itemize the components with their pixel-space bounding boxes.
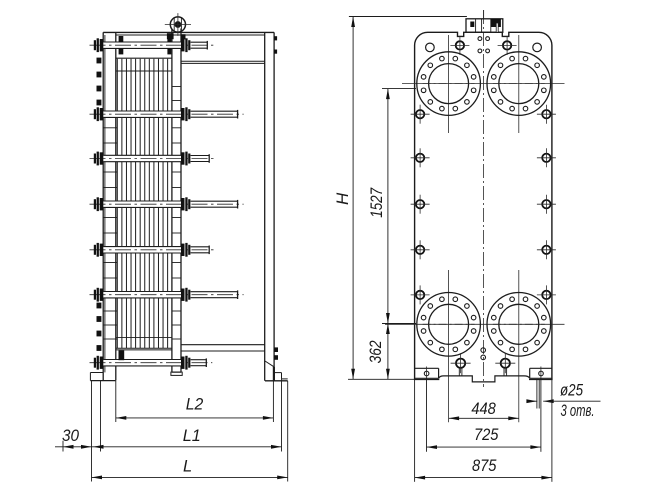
svg-text:L1: L1 bbox=[183, 427, 201, 445]
svg-text:L2: L2 bbox=[186, 396, 204, 414]
svg-text:ø25: ø25 bbox=[560, 382, 584, 400]
svg-text:875: 875 bbox=[472, 457, 497, 475]
svg-text:H: H bbox=[333, 192, 352, 205]
svg-text:1527: 1527 bbox=[368, 187, 386, 218]
svg-text:448: 448 bbox=[471, 400, 496, 418]
svg-text:3 отв.: 3 отв. bbox=[561, 402, 595, 420]
svg-text:30: 30 bbox=[62, 427, 80, 445]
svg-text:362: 362 bbox=[367, 340, 385, 363]
svg-text:725: 725 bbox=[474, 426, 499, 444]
svg-text:L: L bbox=[183, 457, 192, 475]
